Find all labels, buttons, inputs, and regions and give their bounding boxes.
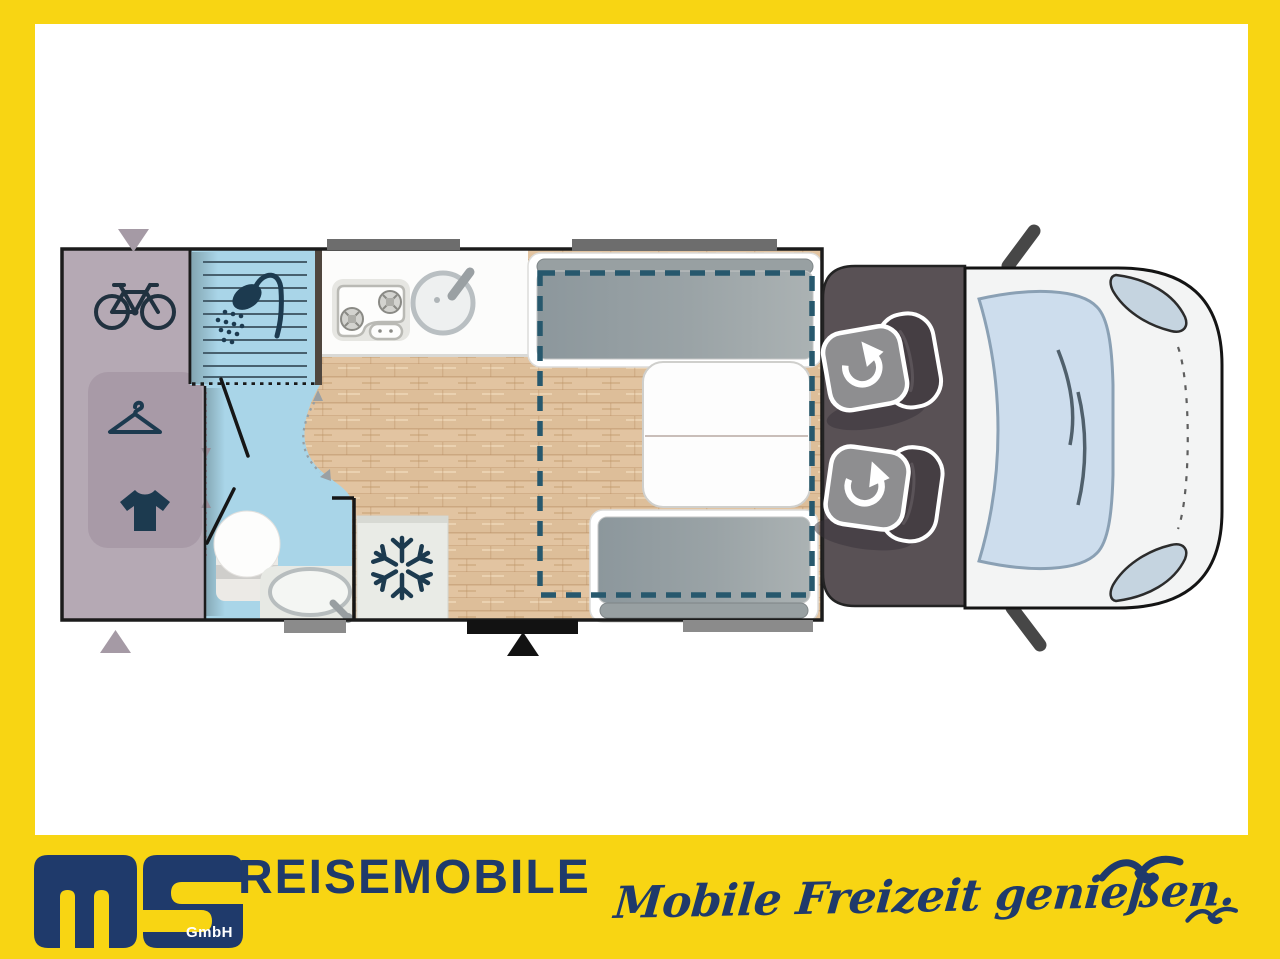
page: REISEMOBILE GmbH Mobile Freizeit genieße…	[0, 0, 1280, 959]
motorhome-floorplan-image	[0, 0, 1280, 959]
windshield	[979, 291, 1113, 568]
brand-gmbh: GmbH	[186, 925, 233, 940]
washbasin-icon	[260, 566, 353, 623]
dinette-table	[643, 362, 810, 507]
roof-vent-arrow	[100, 630, 131, 653]
floorplan	[62, 229, 1222, 656]
van-front	[965, 231, 1222, 645]
entry-door-arrow	[507, 632, 539, 656]
window-marker	[327, 239, 460, 250]
window-marker	[572, 239, 777, 251]
brand-name: REISEMOBILE	[238, 854, 591, 903]
bench-seat-front	[528, 253, 822, 367]
entry-door-marker	[467, 620, 578, 634]
logo-letter-m	[34, 855, 137, 948]
driver-cab	[811, 266, 965, 606]
bench-seat-rear	[590, 510, 818, 622]
window-marker	[284, 620, 346, 633]
window-marker	[683, 620, 813, 632]
mirror	[1012, 608, 1040, 645]
stove-icon	[332, 279, 410, 341]
shower-kitchen-wall	[315, 250, 322, 385]
mirror	[1008, 231, 1034, 266]
rear-garage	[62, 249, 206, 620]
kitchen-sink-icon	[413, 272, 473, 333]
